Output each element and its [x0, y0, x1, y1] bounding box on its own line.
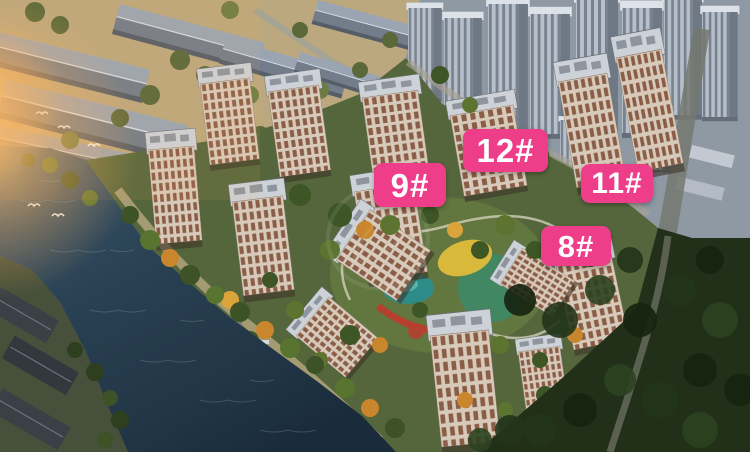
- building-badge-12: 12#: [463, 129, 548, 172]
- scene-svg: [0, 0, 750, 452]
- aerial-rendering: 9# 12# 11# 8#: [0, 0, 750, 452]
- building-badge-11: 11#: [581, 164, 653, 203]
- building-badge-9: 9#: [374, 163, 446, 207]
- building-badge-8: 8#: [541, 226, 611, 266]
